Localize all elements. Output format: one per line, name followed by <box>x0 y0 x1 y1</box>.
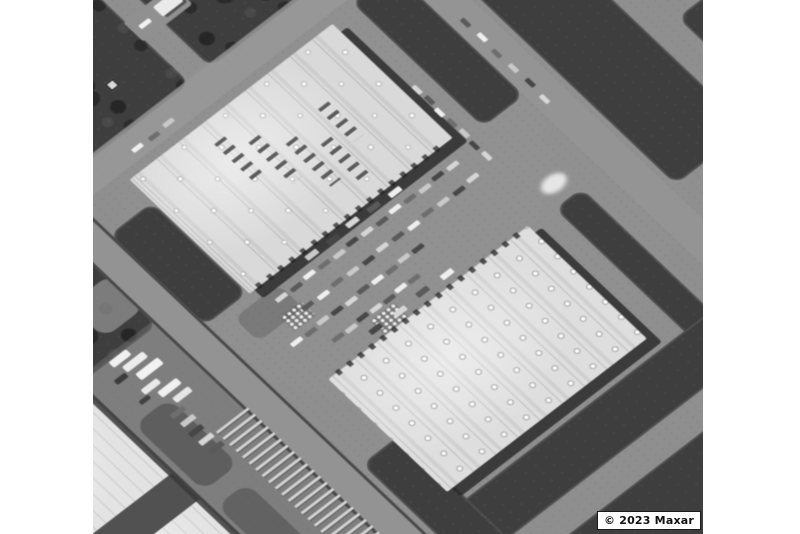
cars-ne-of-warehouse1 <box>481 151 493 162</box>
truck-row-3 <box>371 274 385 285</box>
dock-trucks-warehouse2 <box>439 268 454 281</box>
truck-row-4 <box>407 273 421 284</box>
truck-row-1 <box>345 236 359 247</box>
truck-row-1 <box>388 203 402 214</box>
scene-ground <box>93 0 703 534</box>
truck-row-2 <box>436 196 450 207</box>
truck-row-1 <box>360 226 374 237</box>
truck-row-3 <box>411 243 425 254</box>
truck-row-1 <box>403 193 417 204</box>
truck-row-2 <box>421 207 435 218</box>
white-streak <box>536 169 571 198</box>
truck-row-1 <box>302 269 316 280</box>
truck-row-2 <box>407 220 421 231</box>
copyright-watermark: © 2023 Maxar <box>597 511 701 530</box>
truck-row-3 <box>330 305 344 316</box>
skylight-cluster <box>318 101 363 142</box>
page: { "watermark": { "text": "© 2023 Maxar" … <box>0 0 800 534</box>
truck-row-2 <box>452 185 466 196</box>
truck-row-2 <box>346 265 360 276</box>
truck-row-2 <box>317 289 331 300</box>
truck-row-2 <box>362 255 376 266</box>
truck-row-3 <box>316 315 330 326</box>
satellite-photo: © 2023 Maxar <box>93 0 703 534</box>
dock-trucks-warehouse2 <box>415 285 430 298</box>
truck-row-1 <box>431 170 445 181</box>
truck-row-1 <box>332 249 346 260</box>
truck-row-3 <box>344 295 358 306</box>
truck-row-1 <box>317 259 331 270</box>
truck-row-3 <box>290 336 304 347</box>
truck-row-4 <box>394 282 408 293</box>
truck-row-2 <box>330 276 344 287</box>
truck-row-3 <box>397 253 411 264</box>
truck-row-3 <box>356 284 370 295</box>
truck-row-2 <box>466 172 480 183</box>
truck-row-4 <box>356 312 370 323</box>
truck-row-1 <box>375 216 389 227</box>
watermark-text: © 2023 Maxar <box>604 514 694 527</box>
truck-row-4 <box>344 323 358 334</box>
truck-row-1 <box>290 281 304 292</box>
truck-row-1 <box>446 160 460 171</box>
cars-ne-of-warehouse1 <box>468 140 480 151</box>
truck-row-3 <box>385 264 399 275</box>
truck-row-1 <box>418 183 432 194</box>
truck-row-2 <box>375 242 389 253</box>
truck-row-2 <box>391 231 405 242</box>
loading-dock-row <box>335 230 523 375</box>
truck-row-4 <box>331 332 345 343</box>
truck-row-3 <box>304 326 318 337</box>
